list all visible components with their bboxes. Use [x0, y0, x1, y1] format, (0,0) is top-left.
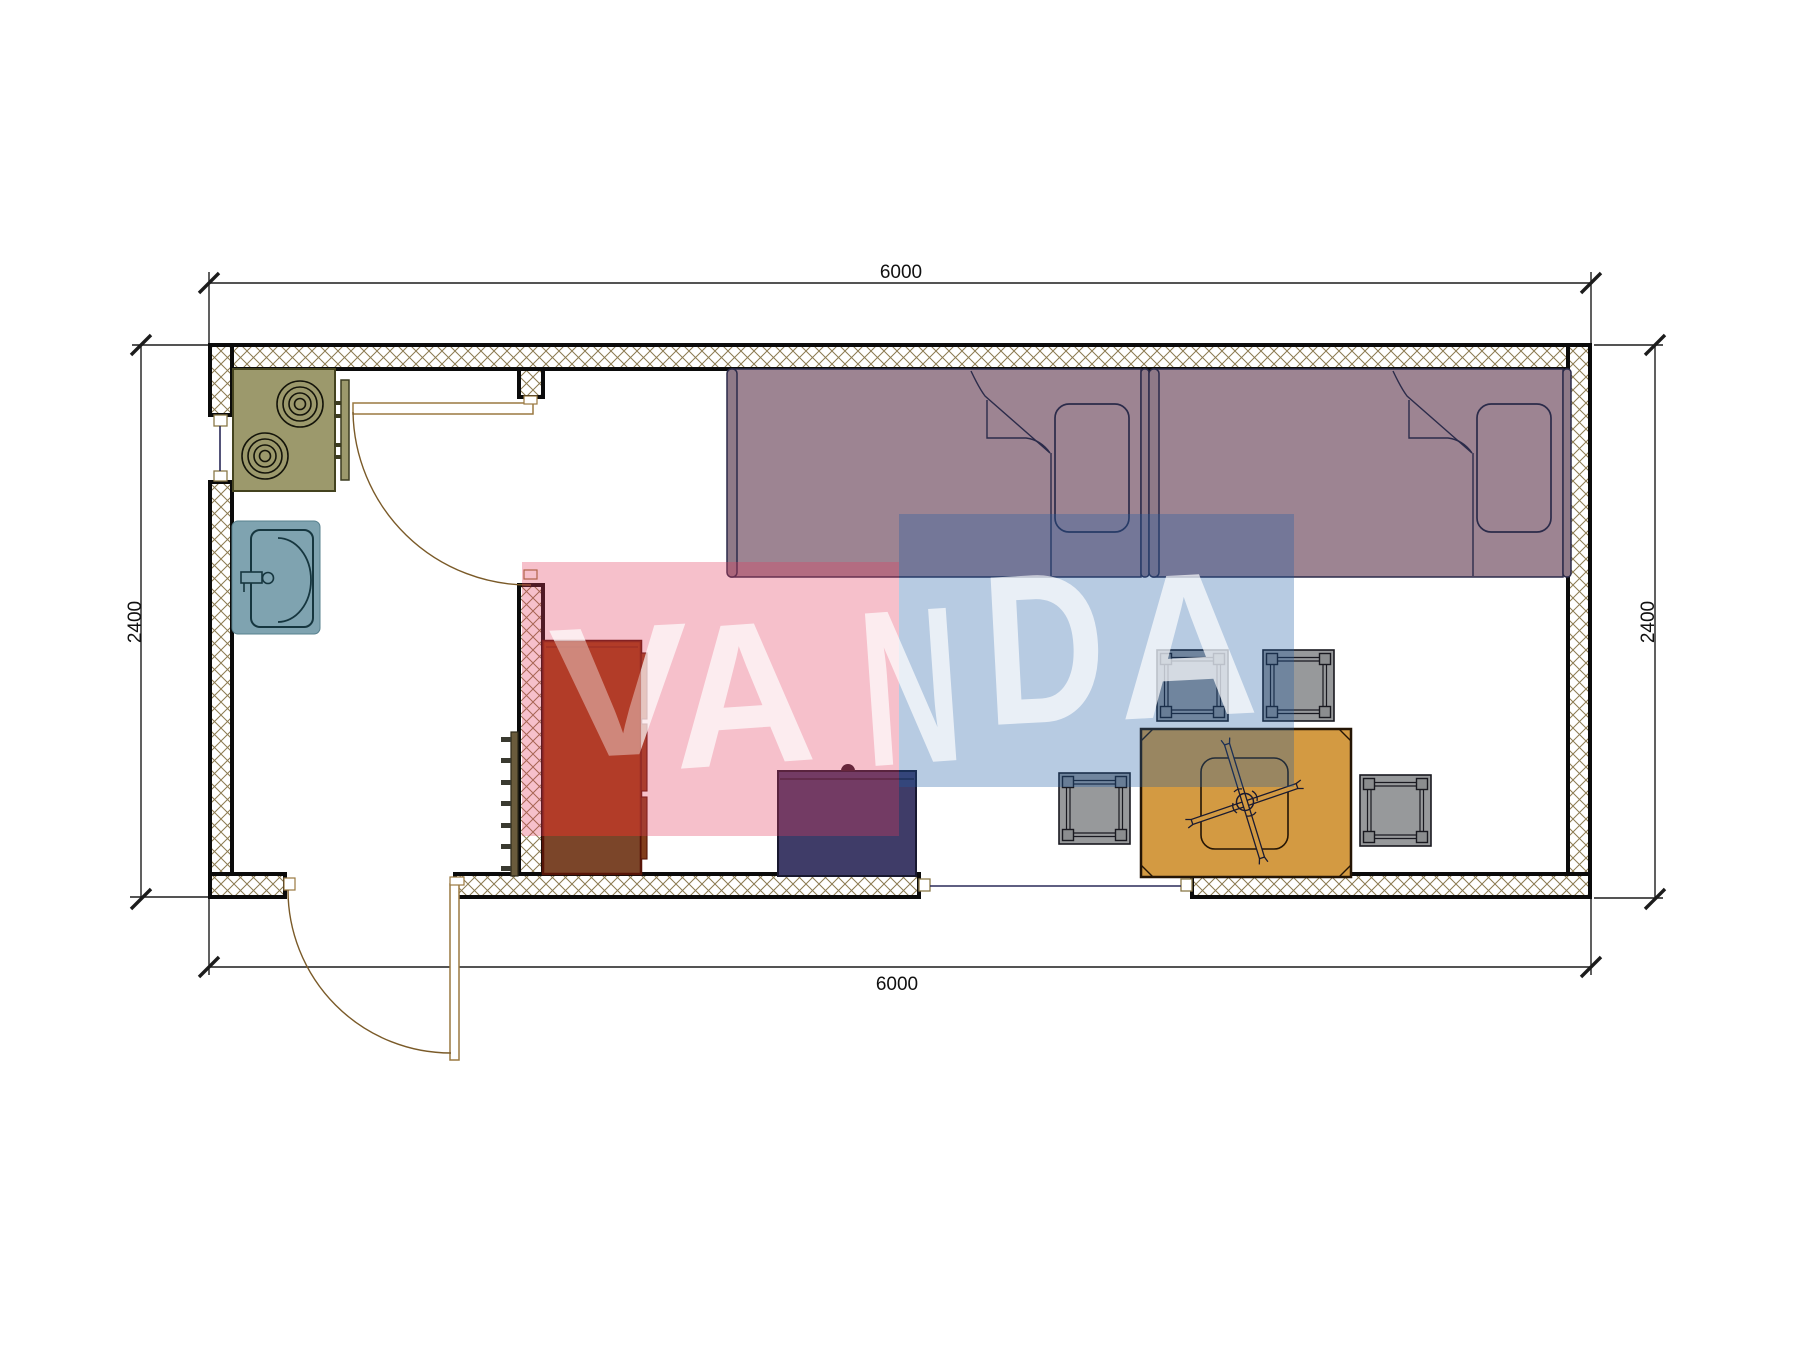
svg-text:6000: 6000 [880, 262, 922, 283]
svg-text:A: A [1111, 528, 1262, 764]
svg-text:2400: 2400 [125, 601, 146, 643]
svg-text:A: A [663, 577, 821, 813]
svg-text:D: D [977, 525, 1111, 771]
svg-text:N: N [853, 560, 969, 814]
svg-text:6000: 6000 [876, 974, 918, 995]
svg-text:2400: 2400 [1638, 601, 1659, 643]
